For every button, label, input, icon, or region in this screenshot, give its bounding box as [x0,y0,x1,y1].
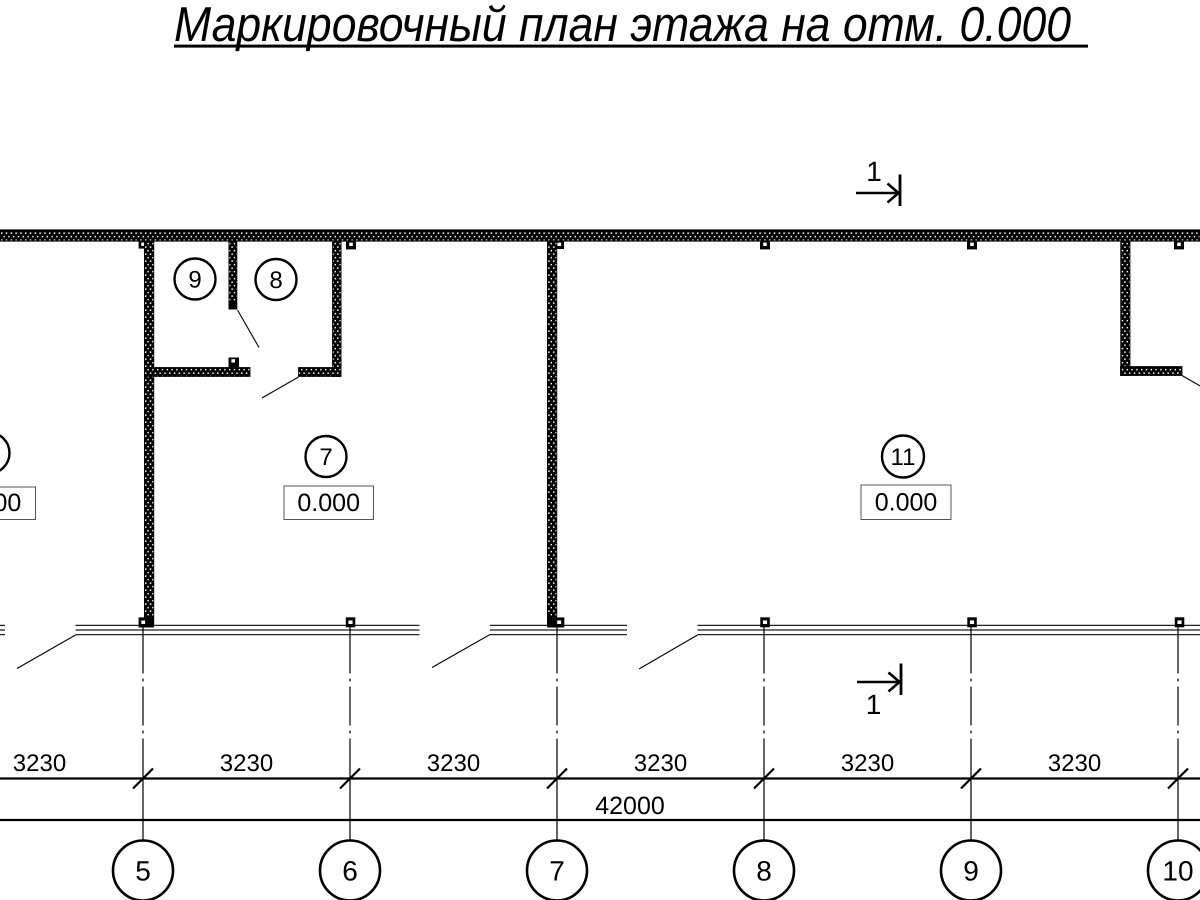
svg-text:9: 9 [963,856,979,887]
svg-text:8: 8 [269,267,282,294]
svg-text:1: 1 [866,156,882,187]
svg-text:6: 6 [342,856,358,887]
svg-text:3230: 3230 [841,750,894,777]
svg-text:0.000: 0.000 [297,489,360,517]
svg-text:5: 5 [135,856,151,887]
svg-text:7: 7 [319,444,332,471]
svg-text:3230: 3230 [427,750,480,777]
svg-text:8: 8 [756,856,772,887]
svg-text:3230: 3230 [634,750,687,777]
svg-text:Маркировочный план этажа на от: Маркировочный план этажа на отм. 0.000 [174,0,1071,52]
svg-text:0.000: 0.000 [0,489,21,517]
svg-text:10: 10 [1162,856,1193,887]
svg-text:3230: 3230 [1048,750,1101,777]
svg-text:9: 9 [188,267,201,294]
svg-text:11: 11 [891,444,916,471]
svg-text:3230: 3230 [220,750,273,777]
svg-text:0.000: 0.000 [875,489,938,517]
svg-text:7: 7 [549,856,565,887]
svg-text:1: 1 [866,689,882,720]
svg-text:42000: 42000 [595,792,665,820]
svg-text:3230: 3230 [13,750,66,777]
